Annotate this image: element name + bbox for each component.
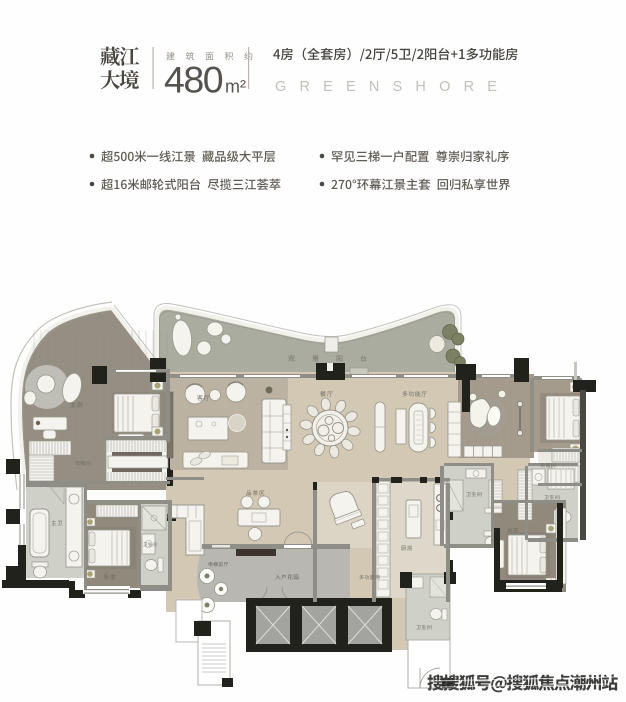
svg-text:480: 480 [164, 59, 223, 101]
svg-text:GREENSHORE: GREENSHORE [275, 79, 510, 95]
svg-text:m²: m² [225, 77, 246, 97]
